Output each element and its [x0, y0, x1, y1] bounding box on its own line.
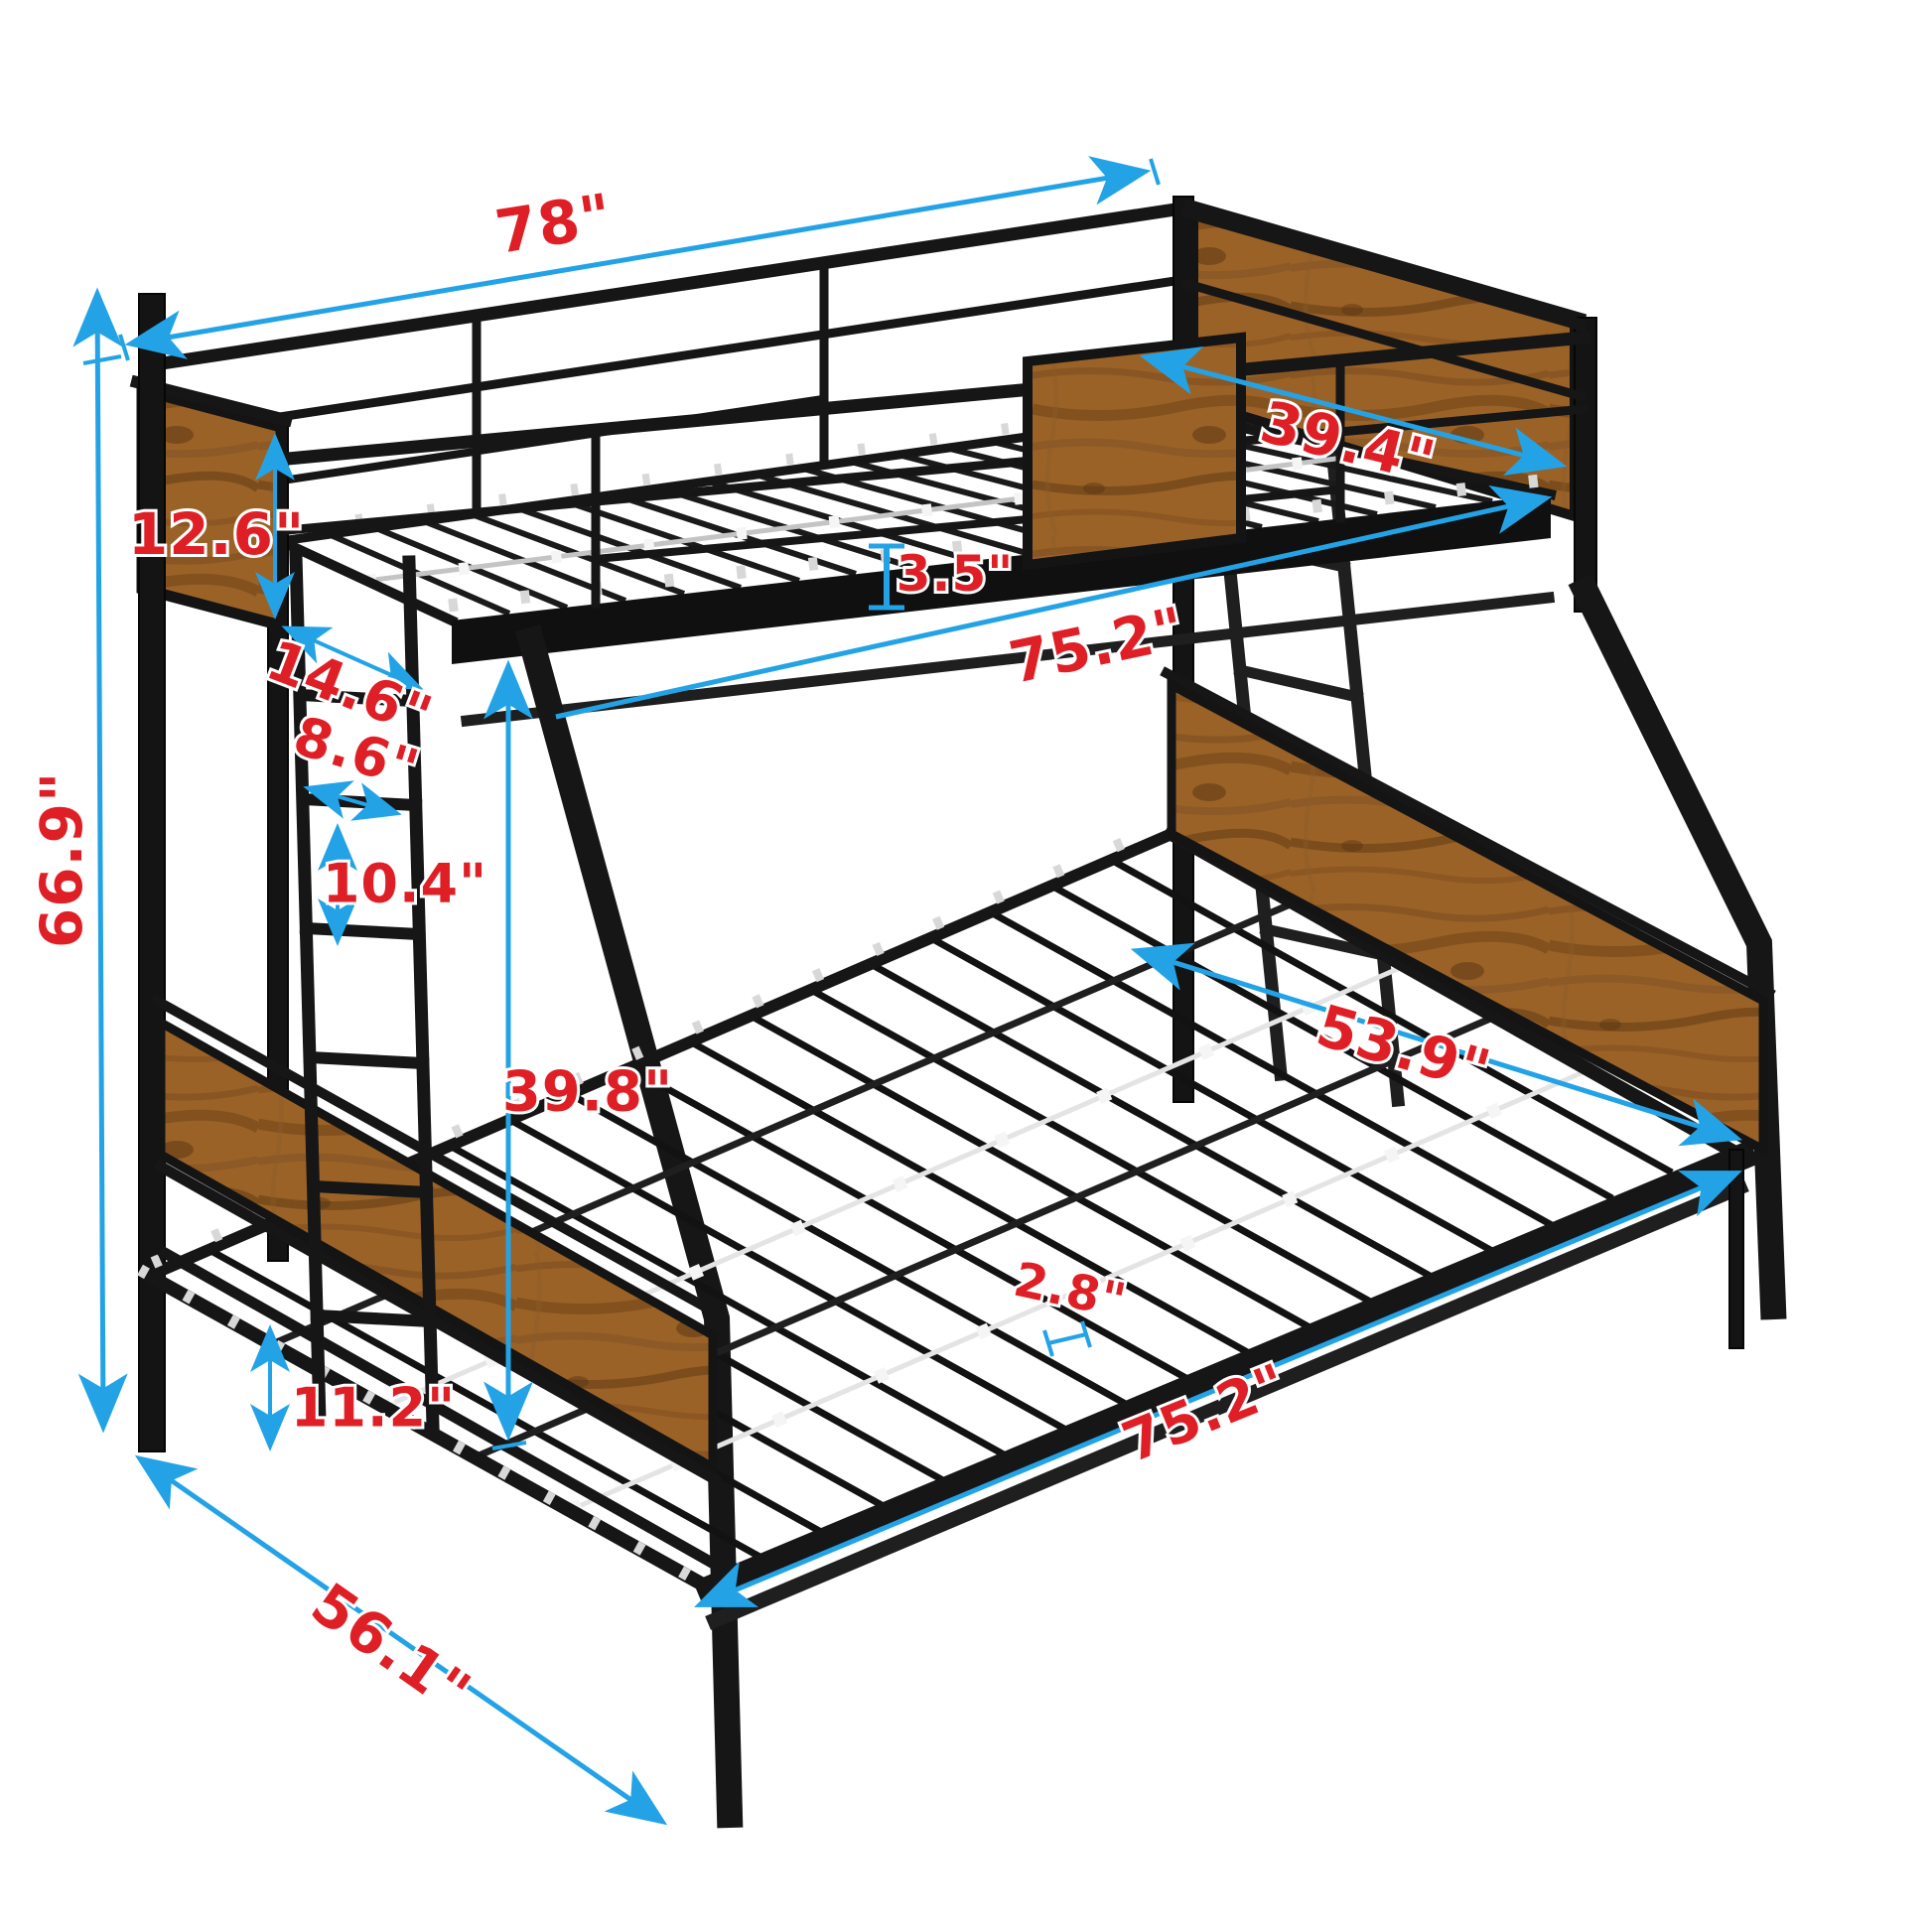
diagram-stage: 78" 39.4" 12.6" 3.5" 75.2" 14.6" 8.6" [0, 0, 1932, 1932]
dim-label: 11.2" [291, 1377, 456, 1440]
dim-label: 39.8" [502, 1060, 673, 1125]
bunk-bed-dimension-diagram: 78" 39.4" 12.6" 3.5" 75.2" 14.6" 8.6" [0, 0, 1932, 1932]
dim-label: 3.5" [897, 545, 1015, 603]
upper-footboard-front-post [1575, 318, 1596, 612]
dim-label: 10.4" [323, 853, 487, 915]
dim-label: 12.6" [128, 500, 305, 568]
dim-label: 66.9" [28, 771, 95, 948]
lower-right-corner-foot [1729, 1150, 1743, 1348]
